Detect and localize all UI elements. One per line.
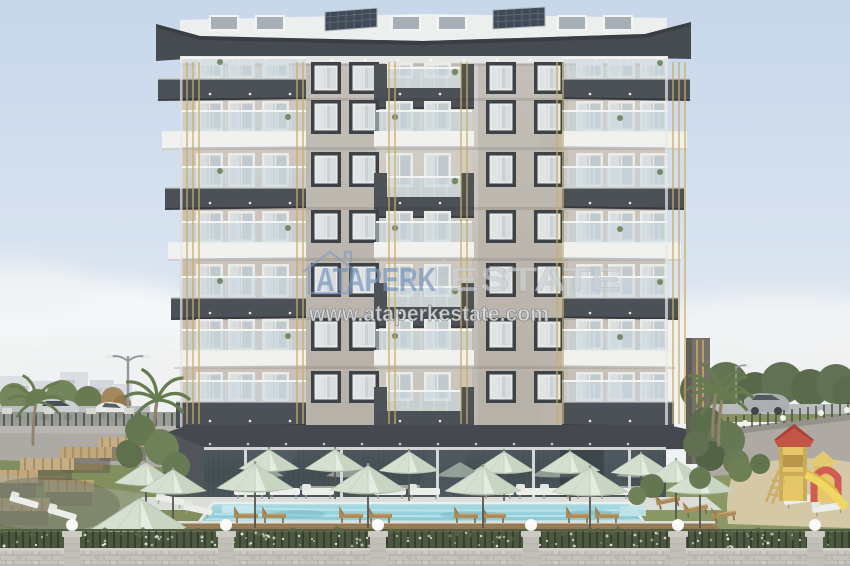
svg-text:ATAPERK: ATAPERK	[316, 261, 436, 298]
svg-text:ESTATE: ESTATE	[449, 261, 621, 299]
svg-text:REAL: REAL	[437, 257, 448, 290]
svg-text:www.ataperkestate.com: www.ataperkestate.com	[308, 301, 549, 326]
